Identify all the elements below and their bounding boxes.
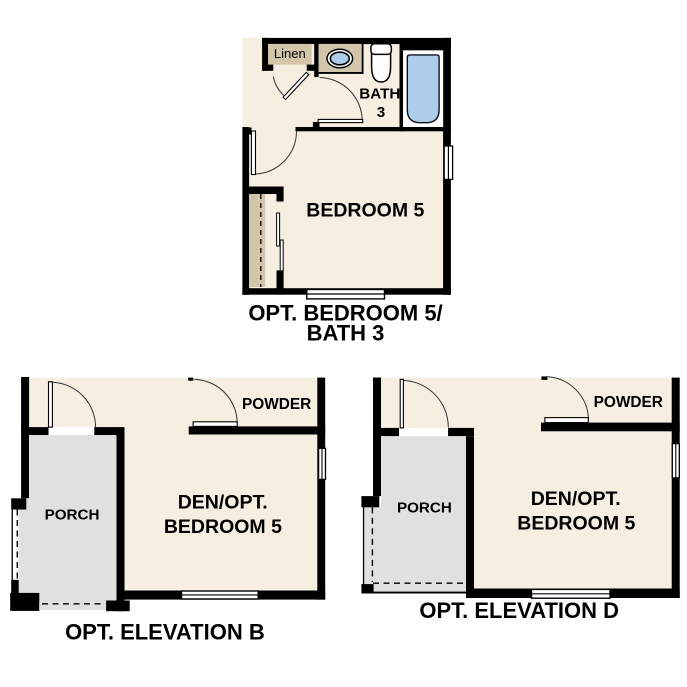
svg-text:DEN/OPT.: DEN/OPT. [531, 488, 621, 510]
svg-text:BEDROOM 5: BEDROOM 5 [164, 516, 282, 538]
svg-text:BATH 3: BATH 3 [307, 321, 385, 346]
svg-text:PORCH: PORCH [397, 499, 452, 516]
svg-text:BEDROOM 5: BEDROOM 5 [517, 513, 635, 535]
svg-text:OPT. ELEVATION B: OPT. ELEVATION B [65, 620, 265, 645]
svg-text:Linen: Linen [274, 46, 306, 61]
svg-text:PORCH: PORCH [45, 506, 100, 523]
svg-text:3: 3 [377, 104, 385, 121]
svg-text:BEDROOM 5: BEDROOM 5 [306, 200, 424, 222]
svg-text:OPT. ELEVATION D: OPT. ELEVATION D [419, 598, 619, 623]
svg-text:POWDER: POWDER [594, 394, 663, 411]
svg-text:BATH: BATH [359, 85, 400, 102]
svg-text:POWDER: POWDER [242, 396, 311, 413]
svg-text:DEN/OPT.: DEN/OPT. [178, 492, 268, 514]
